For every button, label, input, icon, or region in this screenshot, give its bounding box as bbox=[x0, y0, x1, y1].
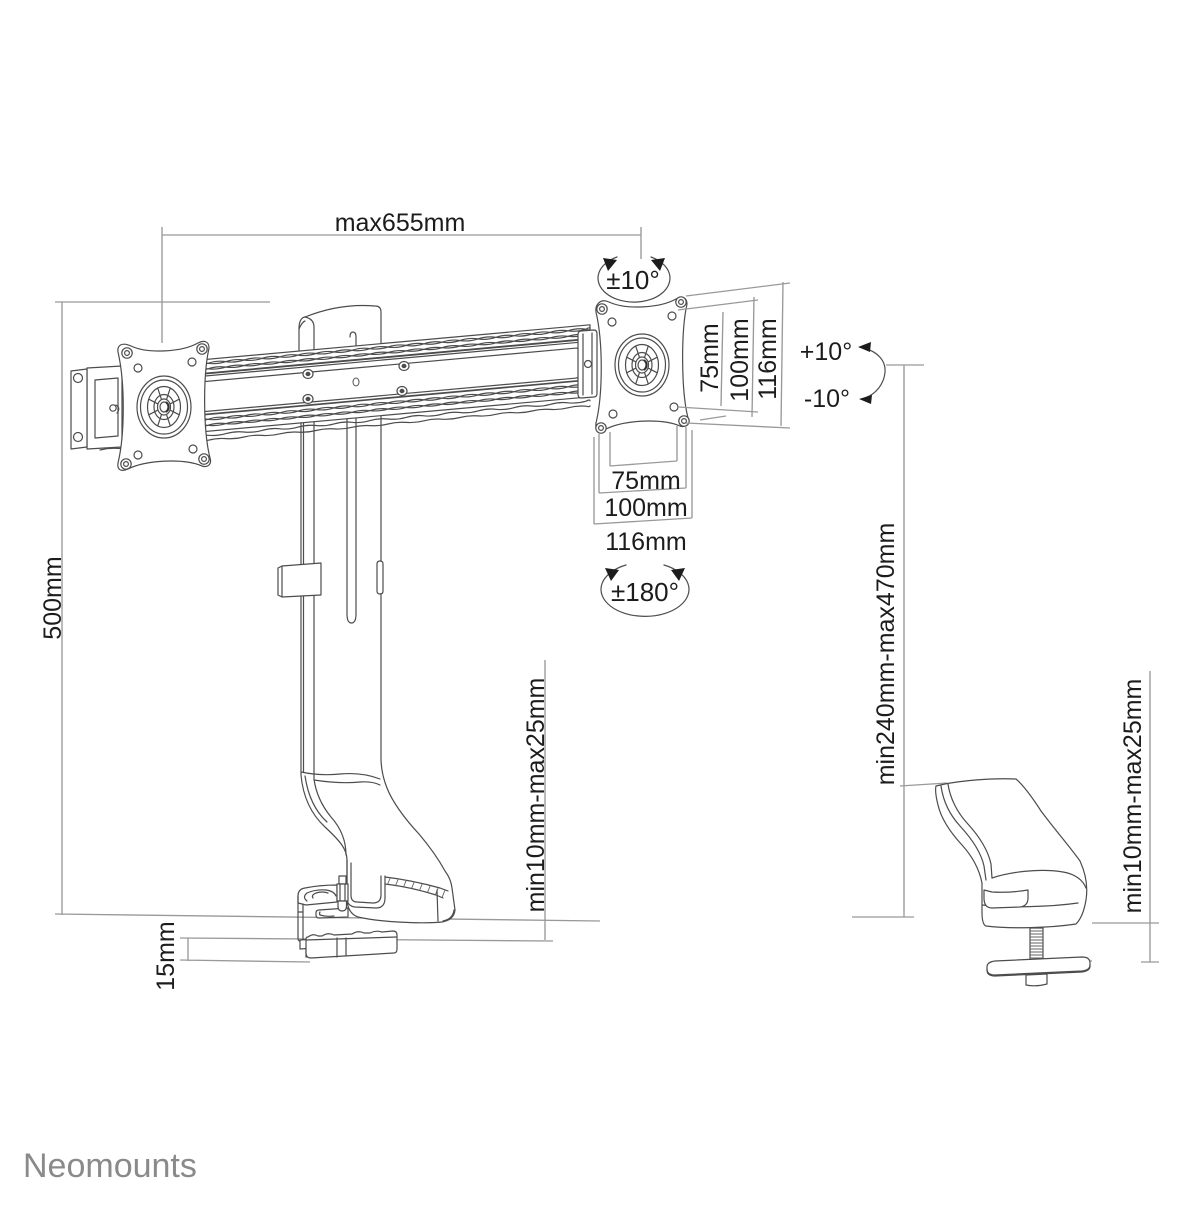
svg-text:100mm: 100mm bbox=[726, 318, 754, 401]
svg-text:min10mm-max25mm: min10mm-max25mm bbox=[1119, 679, 1147, 914]
svg-text:500mm: 500mm bbox=[39, 556, 67, 639]
svg-text:15mm: 15mm bbox=[152, 921, 180, 990]
svg-text:116mm: 116mm bbox=[754, 318, 782, 400]
svg-text:75mm: 75mm bbox=[611, 467, 680, 495]
svg-text:min10mm-max25mm: min10mm-max25mm bbox=[522, 678, 550, 913]
svg-text:+10°: +10° bbox=[800, 338, 852, 366]
svg-text:100mm: 100mm bbox=[604, 494, 687, 522]
svg-text:±10°: ±10° bbox=[606, 265, 660, 295]
svg-text:max655mm: max655mm bbox=[335, 209, 466, 237]
svg-text:-10°: -10° bbox=[804, 385, 850, 413]
svg-text:116mm: 116mm bbox=[605, 528, 687, 556]
svg-text:Neomounts: Neomounts bbox=[23, 1147, 197, 1185]
svg-text:±180°: ±180° bbox=[611, 577, 679, 607]
svg-text:75mm: 75mm bbox=[696, 323, 724, 392]
svg-text:min240mm-max470mm: min240mm-max470mm bbox=[872, 523, 900, 786]
